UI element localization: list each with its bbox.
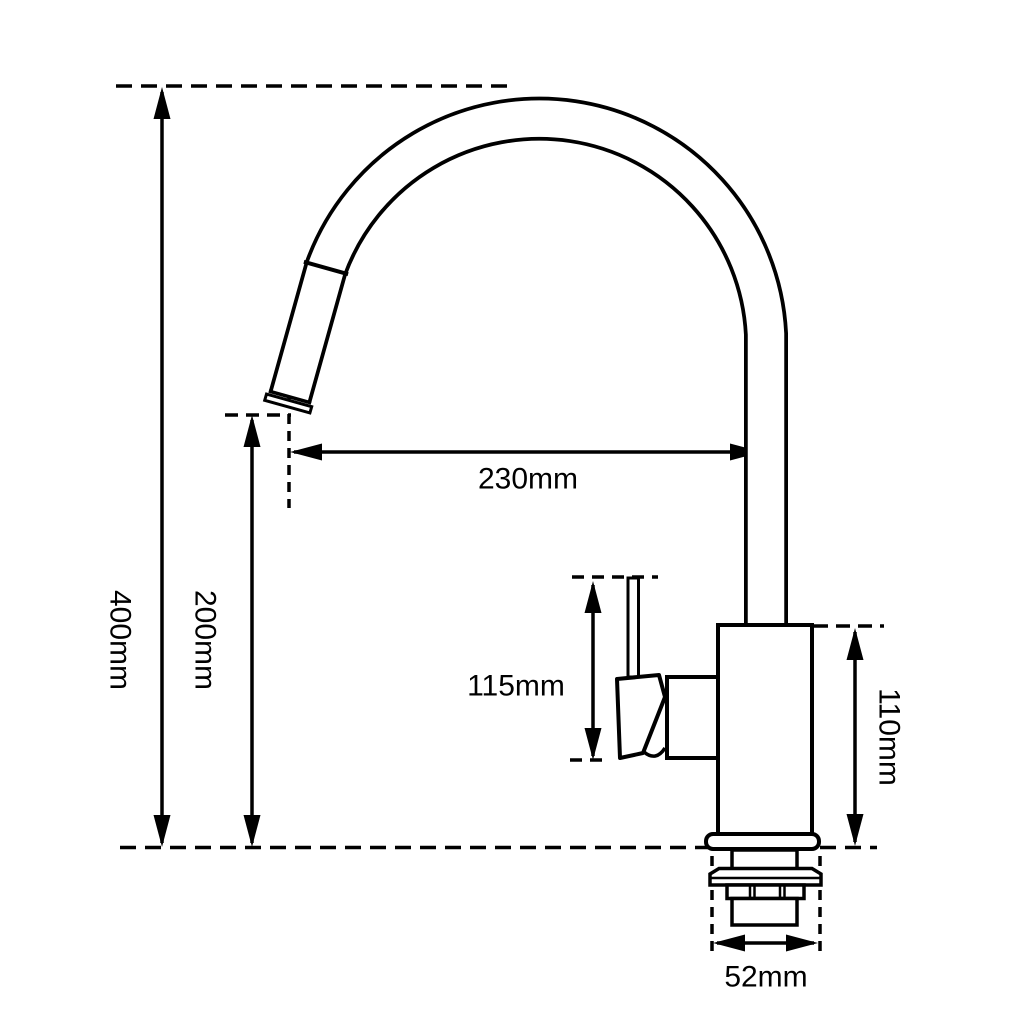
dim-label-overall-height: 400mm bbox=[104, 590, 137, 690]
dim-label-base-width: 52mm bbox=[724, 961, 807, 994]
dimension-overall-height: 400mm bbox=[104, 87, 171, 847]
valve-block bbox=[667, 677, 718, 758]
faucet-spout bbox=[290, 119, 766, 628]
faucet-dimension-diagram: 400mm 200mm 230mm 115mm 110mm 52mm bbox=[0, 0, 1024, 1024]
dimension-body-height: 110mm bbox=[847, 628, 906, 846]
arrowhead-left-icon bbox=[713, 935, 745, 952]
dim-label-body-height: 110mm bbox=[873, 688, 906, 786]
faucet-body bbox=[718, 625, 812, 836]
spout-inner-fill bbox=[290, 119, 766, 628]
arrowhead-up-icon bbox=[154, 87, 171, 119]
arrowhead-down-icon bbox=[847, 814, 864, 846]
dim-label-handle-height: 115mm bbox=[467, 670, 565, 703]
arrowhead-up-icon bbox=[244, 415, 261, 447]
arrowhead-up-icon bbox=[585, 581, 602, 613]
arrowhead-down-icon bbox=[585, 728, 602, 760]
dimension-handle-height: 115mm bbox=[467, 581, 601, 760]
arrowhead-left-icon bbox=[290, 444, 322, 461]
dimension-spout-reach: 230mm bbox=[290, 444, 762, 496]
handle-rod bbox=[628, 578, 639, 677]
arrowhead-right-icon bbox=[786, 935, 818, 952]
handle-base-arc bbox=[644, 748, 665, 756]
mounting-base bbox=[706, 834, 821, 925]
handle-face bbox=[617, 675, 665, 758]
mounting-nut bbox=[727, 885, 804, 899]
faucet-handle bbox=[617, 675, 666, 758]
faucet-drawing bbox=[265, 119, 821, 925]
arrowhead-down-icon bbox=[154, 815, 171, 847]
threaded-tail bbox=[732, 899, 797, 926]
arrowhead-down-icon bbox=[244, 815, 261, 847]
dim-label-spout-tip-height: 200mm bbox=[189, 590, 222, 690]
dimension-spout-tip-height: 200mm bbox=[189, 415, 261, 847]
dimension-base-width: 52mm bbox=[713, 935, 818, 994]
arrowhead-up-icon bbox=[847, 628, 864, 660]
technical-drawing-canvas: 400mm 200mm 230mm 115mm 110mm 52mm bbox=[0, 0, 1024, 1024]
dim-label-spout-reach: 230mm bbox=[478, 463, 578, 496]
base-flange bbox=[706, 834, 819, 849]
